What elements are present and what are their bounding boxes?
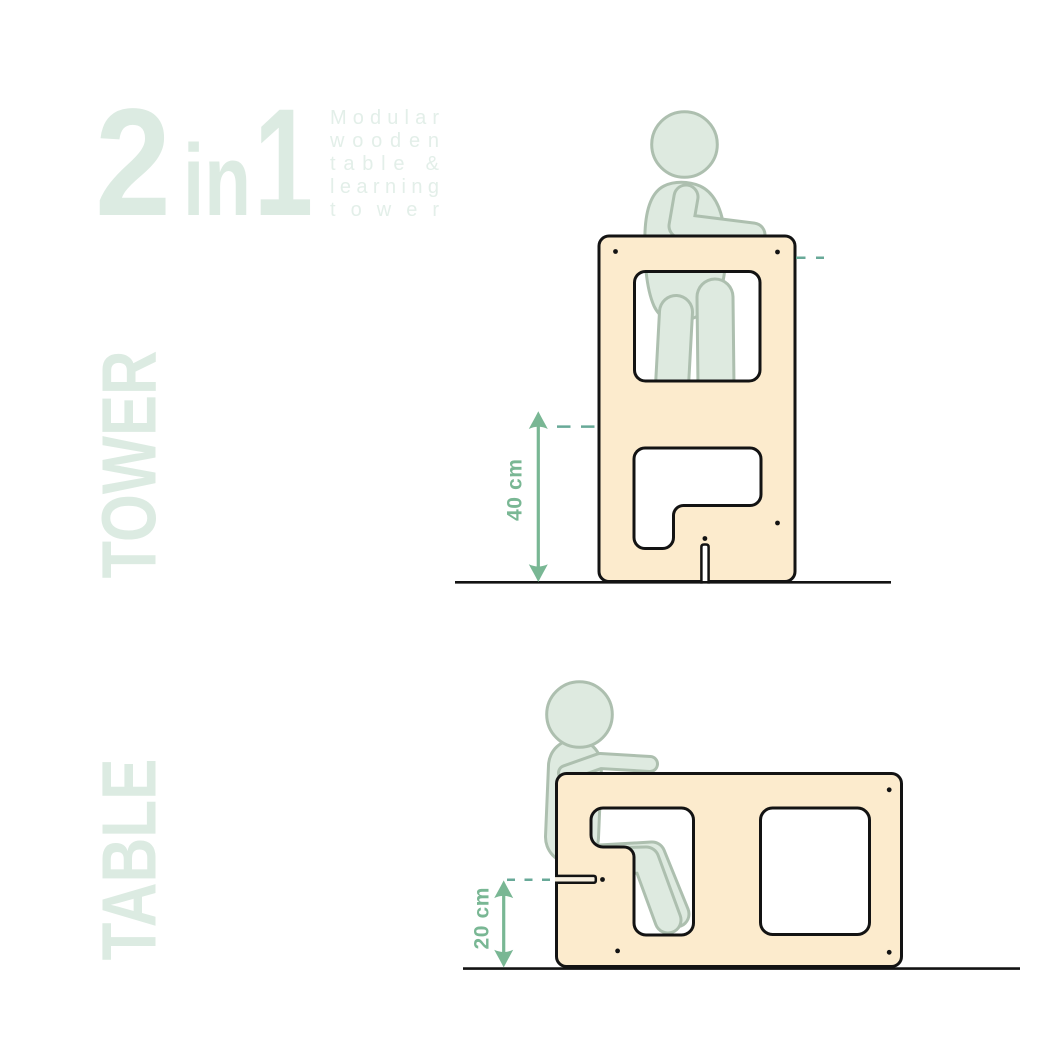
- svg-text:1: 1: [254, 77, 313, 248]
- svg-text:20 cm: 20 cm: [471, 887, 494, 950]
- svg-text:40 cm: 40 cm: [504, 458, 527, 521]
- svg-text:2: 2: [95, 77, 171, 248]
- svg-text:TOWER: TOWER: [87, 351, 173, 579]
- svg-text:in: in: [183, 125, 251, 237]
- svg-text:TABLE: TABLE: [87, 759, 173, 961]
